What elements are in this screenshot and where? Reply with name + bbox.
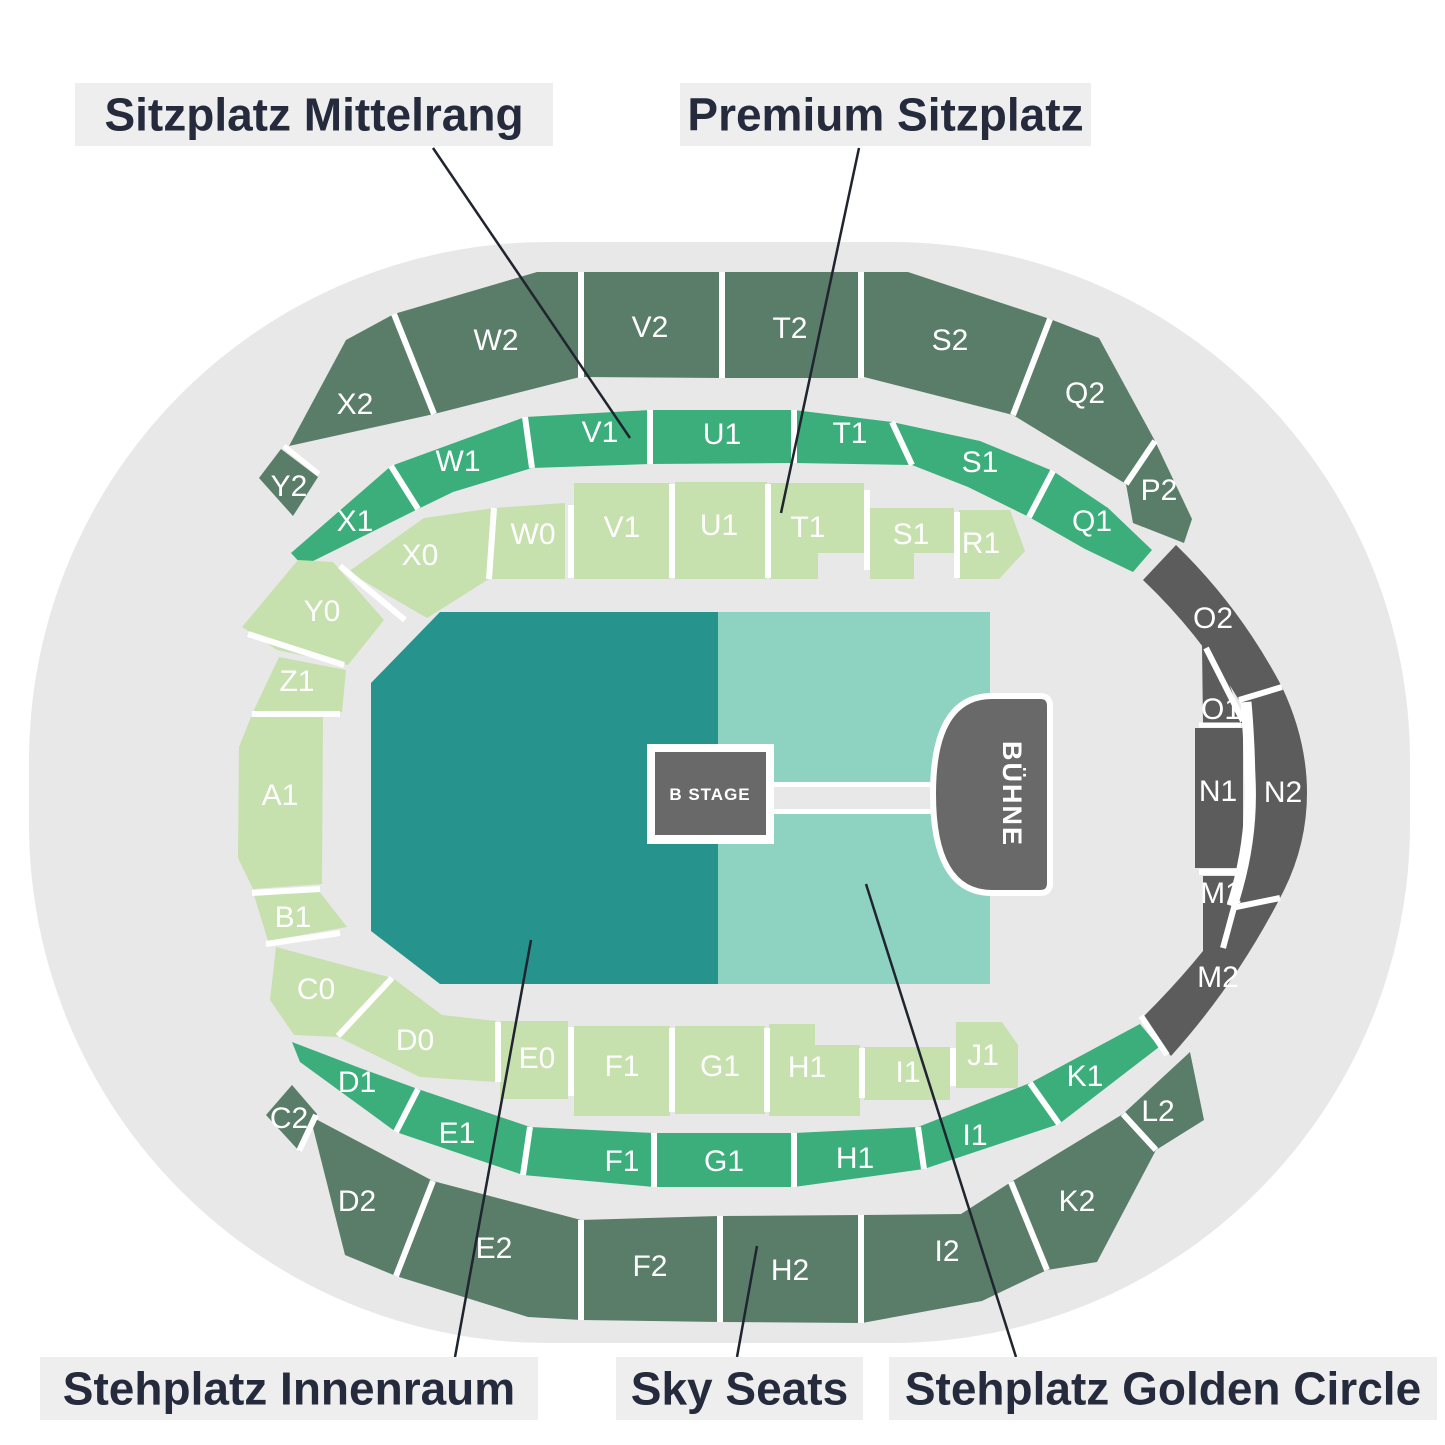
svg-text:N2: N2 <box>1264 776 1302 809</box>
svg-text:O1: O1 <box>1201 693 1241 726</box>
svg-text:Y2: Y2 <box>271 470 308 503</box>
svg-text:V2: V2 <box>632 311 669 344</box>
svg-text:Y0: Y0 <box>304 595 341 628</box>
svg-text:K2: K2 <box>1059 1185 1096 1218</box>
svg-text:G1: G1 <box>704 1145 744 1178</box>
svg-text:C2: C2 <box>270 1102 308 1135</box>
svg-text:X1: X1 <box>337 505 374 538</box>
svg-text:Premium Sitzplatz: Premium Sitzplatz <box>687 89 1083 141</box>
svg-text:F1: F1 <box>604 1050 639 1083</box>
svg-text:F1: F1 <box>604 1145 639 1178</box>
svg-text:BÜHNE: BÜHNE <box>997 741 1027 847</box>
svg-text:Stehplatz Innenraum: Stehplatz Innenraum <box>63 1363 515 1415</box>
svg-text:I2: I2 <box>934 1235 959 1268</box>
svg-text:H1: H1 <box>836 1142 874 1175</box>
svg-text:E2: E2 <box>476 1232 513 1265</box>
svg-text:D0: D0 <box>396 1024 434 1057</box>
svg-text:U1: U1 <box>703 418 741 451</box>
svg-text:O2: O2 <box>1193 602 1233 635</box>
svg-text:M2: M2 <box>1197 961 1239 994</box>
svg-text:Q1: Q1 <box>1072 505 1112 538</box>
svg-text:I1: I1 <box>962 1119 987 1152</box>
svg-text:W1: W1 <box>436 445 481 478</box>
svg-text:N1: N1 <box>1199 775 1237 808</box>
svg-text:D1: D1 <box>338 1066 376 1099</box>
svg-text:T1: T1 <box>790 511 825 544</box>
svg-text:Sitzplatz Mittelrang: Sitzplatz Mittelrang <box>104 89 523 141</box>
svg-text:M1: M1 <box>1200 877 1242 910</box>
svg-text:W0: W0 <box>511 518 556 551</box>
svg-text:V1: V1 <box>604 511 641 544</box>
svg-text:S2: S2 <box>932 324 969 357</box>
svg-text:U1: U1 <box>700 509 738 542</box>
svg-text:Q2: Q2 <box>1065 377 1105 410</box>
svg-text:W2: W2 <box>474 324 519 357</box>
svg-text:I1: I1 <box>895 1056 920 1089</box>
svg-text:P2: P2 <box>1141 474 1178 507</box>
svg-text:S1: S1 <box>893 518 930 551</box>
svg-text:E1: E1 <box>439 1117 476 1150</box>
svg-text:F2: F2 <box>632 1250 667 1283</box>
svg-text:T1: T1 <box>832 417 867 450</box>
svg-text:A1: A1 <box>262 779 299 812</box>
svg-text:H1: H1 <box>788 1051 826 1084</box>
svg-text:Sky Seats: Sky Seats <box>631 1363 848 1415</box>
svg-text:R1: R1 <box>962 527 1000 560</box>
svg-text:J1: J1 <box>967 1039 999 1072</box>
svg-text:Stehplatz Golden Circle: Stehplatz Golden Circle <box>905 1363 1421 1415</box>
svg-text:Z1: Z1 <box>279 665 314 698</box>
svg-text:H2: H2 <box>771 1254 809 1287</box>
svg-text:B STAGE: B STAGE <box>669 785 750 804</box>
svg-text:D2: D2 <box>338 1185 376 1218</box>
svg-text:X0: X0 <box>402 539 439 572</box>
svg-text:C0: C0 <box>297 973 335 1006</box>
svg-text:T2: T2 <box>772 312 807 345</box>
svg-text:G1: G1 <box>700 1050 740 1083</box>
svg-text:S1: S1 <box>962 446 999 479</box>
svg-text:K1: K1 <box>1067 1060 1104 1093</box>
svg-text:E0: E0 <box>519 1042 556 1075</box>
svg-text:B1: B1 <box>275 901 312 934</box>
svg-text:X2: X2 <box>337 388 374 421</box>
svg-text:V1: V1 <box>582 416 619 449</box>
svg-text:L2: L2 <box>1141 1095 1174 1128</box>
